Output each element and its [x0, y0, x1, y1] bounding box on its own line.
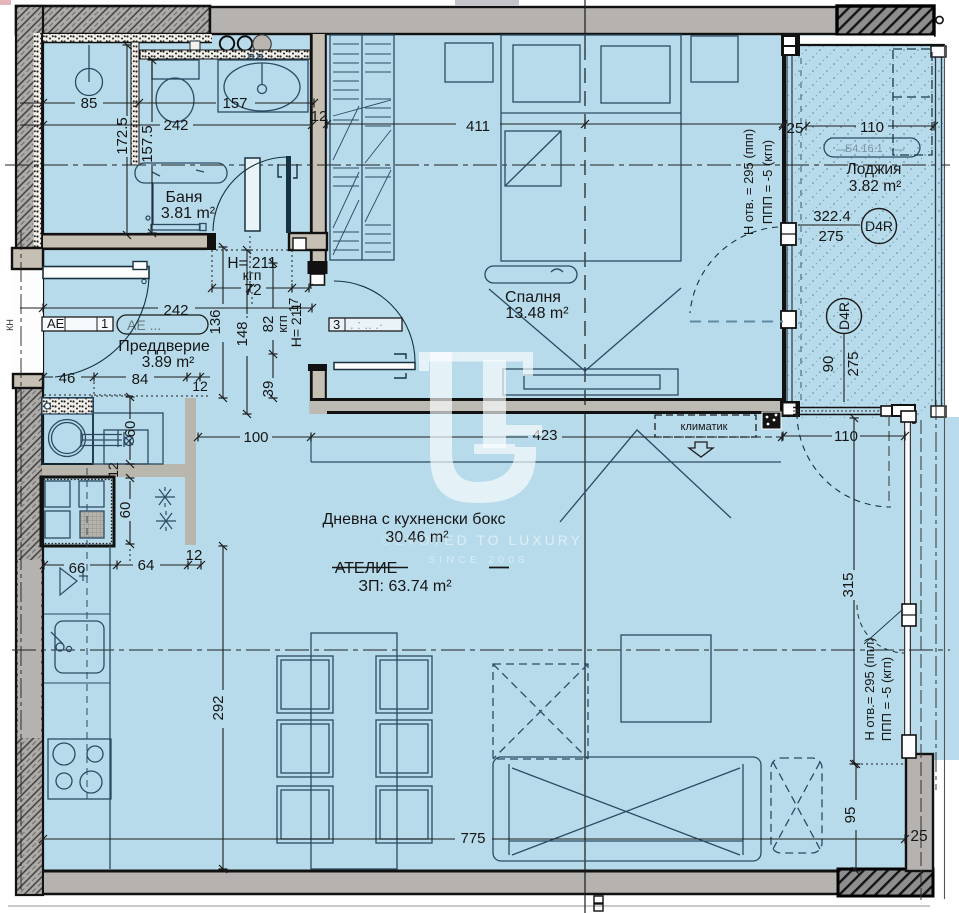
svg-text:157: 157: [222, 95, 247, 112]
svg-text:12: 12: [311, 108, 328, 125]
svg-text:13.48 m²: 13.48 m²: [505, 305, 569, 322]
svg-text:Н отв.= 295 (ппл): Н отв.= 295 (ппл): [862, 637, 877, 740]
svg-text:Спалня: Спалня: [505, 289, 561, 306]
svg-text:90: 90: [820, 356, 837, 373]
svg-text:136: 136: [207, 309, 224, 334]
svg-text:ППП = -5 (кгп): ППП = -5 (кгп): [760, 140, 775, 224]
svg-text:12: 12: [192, 378, 208, 394]
svg-text:110: 110: [860, 119, 884, 136]
svg-text:85: 85: [81, 95, 98, 112]
svg-text:66: 66: [69, 560, 86, 577]
svg-text:157.5: 157.5: [139, 125, 156, 163]
svg-text:60: 60: [117, 502, 134, 519]
svg-text:Лоджия: Лоджия: [847, 161, 902, 178]
svg-text:кгп: кгп: [243, 267, 262, 283]
svg-text:АТЕЛИЕ: АТЕЛИЕ: [335, 560, 398, 577]
svg-text:Дневна с кухненски бокс: Дневна с кухненски бокс: [322, 511, 505, 528]
svg-text:95: 95: [842, 807, 859, 824]
svg-text:39: 39: [260, 381, 277, 398]
svg-text:Преддверие: Преддверие: [118, 338, 210, 355]
svg-text:3.89 m²: 3.89 m²: [142, 354, 195, 371]
svg-text:АЕ ...: АЕ ...: [127, 317, 161, 333]
svg-text:Б4.16.1: Б4.16.1: [845, 143, 883, 155]
svg-text:. : .. .·: . : .. .·: [350, 317, 383, 332]
svg-text:775: 775: [460, 830, 485, 847]
svg-text:25: 25: [910, 828, 927, 845]
svg-text:46: 46: [59, 370, 76, 387]
svg-text:84: 84: [132, 371, 149, 388]
svg-text:3.81 m²: 3.81 m²: [161, 205, 216, 222]
svg-text:H= 211: H= 211: [288, 303, 304, 348]
svg-text:275: 275: [845, 351, 862, 376]
svg-text:148: 148: [234, 321, 251, 346]
svg-text:DEVOTED TO LUXURY: DEVOTED TO LUXURY: [381, 532, 583, 548]
svg-text:климатик: климатик: [681, 421, 728, 433]
svg-text:275: 275: [818, 228, 843, 245]
svg-text:242: 242: [163, 117, 188, 134]
svg-text:100: 100: [243, 429, 268, 446]
svg-text:1: 1: [101, 316, 108, 331]
svg-text:AE: AE: [47, 316, 65, 331]
svg-text:КН: КН: [5, 319, 15, 331]
svg-text:ППП = -5 (кгп): ППП = -5 (кгп): [879, 657, 894, 741]
svg-text:ЗП: 63.74 m²: ЗП: 63.74 m²: [358, 578, 452, 595]
svg-text:12: 12: [105, 462, 121, 478]
svg-text:60: 60: [122, 421, 139, 438]
svg-text:D4R: D4R: [836, 302, 852, 330]
svg-text:25: 25: [787, 120, 804, 137]
svg-text:242: 242: [163, 302, 188, 319]
svg-text:SINCE 2008: SINCE 2008: [428, 554, 528, 566]
svg-text:64: 64: [138, 557, 155, 574]
svg-text:315: 315: [840, 572, 857, 597]
svg-text:411: 411: [466, 118, 490, 135]
svg-text:110: 110: [834, 428, 858, 445]
svg-text:292: 292: [210, 695, 227, 720]
svg-text:12: 12: [186, 547, 203, 564]
svg-text:72: 72: [244, 282, 261, 299]
svg-text:172.5: 172.5: [114, 117, 131, 155]
svg-text:322.4: 322.4: [813, 208, 851, 225]
svg-text:3: 3: [333, 317, 340, 332]
svg-text:3.82 m²: 3.82 m²: [849, 178, 902, 195]
svg-text:D4R: D4R: [865, 218, 893, 234]
svg-text:Баня: Баня: [166, 189, 203, 206]
svg-text:Н отв. = 295 (ппп): Н отв. = 295 (ппп): [741, 129, 756, 235]
